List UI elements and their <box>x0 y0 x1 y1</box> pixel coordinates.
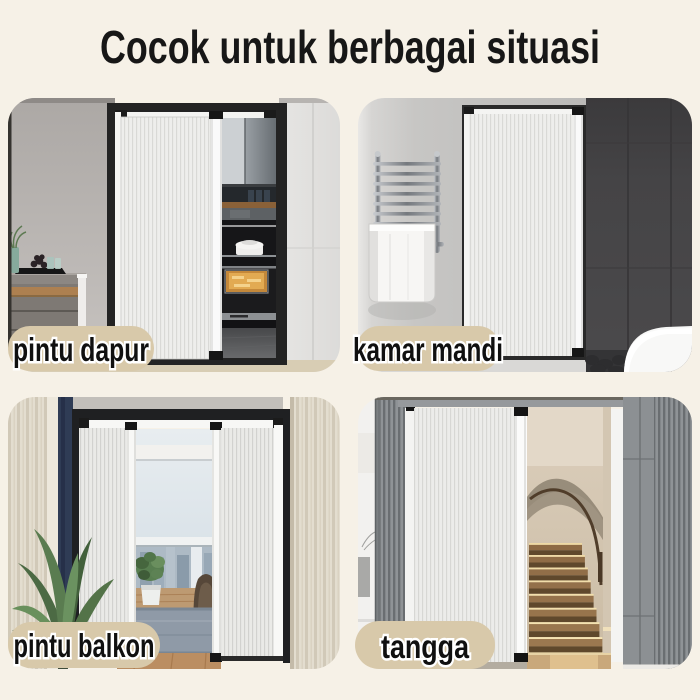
svg-text:Cocok untuk berbagai situasi: Cocok untuk berbagai situasi <box>100 21 600 73</box>
svg-text:pintu dapur: pintu dapur <box>13 331 149 368</box>
svg-text:tangga: tangga <box>381 628 470 665</box>
svg-text:kamar mandi: kamar mandi <box>353 331 503 368</box>
svg-text:pintu balkon: pintu balkon <box>14 627 155 664</box>
